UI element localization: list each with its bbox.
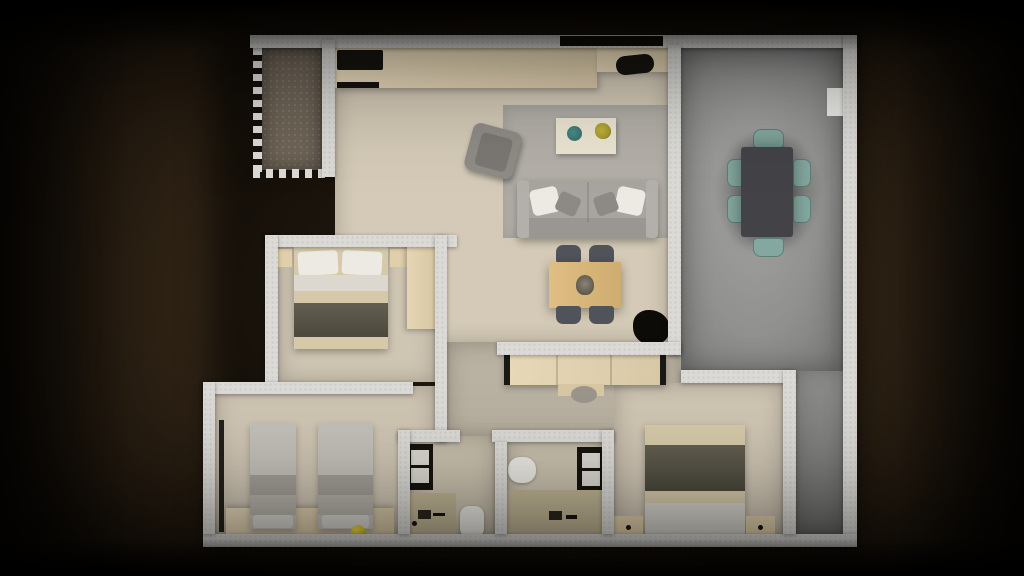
wall-hall-bath-b [492,430,614,442]
bed-sheet [294,275,388,291]
sofa-pillow-gray-right [592,191,620,217]
vanity-basin [549,511,562,520]
sofa-pillow-white-right [614,185,647,216]
bathroom2-shower [577,447,604,493]
wall-bedroom1-left [265,235,278,382]
wall-right [843,35,857,547]
bed-pillow-right [341,250,382,276]
closet-end-cap [660,354,666,385]
wall-terrace-left [668,45,681,355]
bed-blanket [294,303,388,337]
wall-bedroom1-top [265,235,457,247]
bed-blanket [645,445,745,491]
vanity-faucet [433,513,445,516]
shower-pane [582,471,600,486]
twin-bed-lower [318,495,373,515]
window-opening [560,36,663,46]
floor-plant-dark [633,310,670,345]
table-centerpiece [576,275,594,295]
twin-bed-right [318,423,373,529]
bathroom1-vanity [407,493,456,536]
bed-sheet [645,503,745,535]
terrace-dining-table [741,147,793,237]
closet-end-cap [504,354,510,385]
terrace-chair-bottom [753,238,784,257]
terrace-chair-right-2 [793,195,811,223]
wall-bathroom1-left [398,430,410,534]
wall-master-right [783,370,796,534]
closet-seam [610,354,612,385]
balcony-railing-left [253,48,262,178]
armchair-seat [474,132,514,173]
wall-bedroom1-right [435,235,447,442]
wall-bathroom-divider [495,442,507,534]
terrace-chair-right-1 [793,159,811,187]
cooktop [337,50,383,70]
master-bed [645,425,745,535]
twin-bed-band [318,475,373,495]
small-dining-chair-2 [589,245,614,263]
terrace-chair-top [753,129,784,148]
bedroom1-bed [294,247,388,349]
wall-living-bottom [497,342,681,355]
potted-plant-yellow [595,123,611,139]
bathroom2-washbasin [508,457,536,483]
shower-pane [411,468,429,483]
hallway-stool [571,386,597,403]
bathroom1-shower [407,444,433,490]
wall-terrace-bottom [681,370,795,383]
vanity-basin [418,510,431,519]
decor-plate-teal [567,126,582,141]
cooktop-edge [337,82,379,88]
twin-bed-left [250,423,296,529]
shower-pane [411,450,429,465]
twin-bedroom-floor-lamp [219,420,224,532]
small-dining-table [549,262,621,308]
balcony-railing-bottom [253,169,331,178]
room-terrace-floor-strip [795,371,843,534]
twin-bed-band [250,475,296,495]
closet-seam [556,354,558,385]
wall-bathroom2-right [602,430,614,534]
wall-top [250,35,857,48]
vanity-faucet [566,515,577,519]
floor-plan-scene: Top-down 3D rendered apartment floor pla… [0,0,1024,576]
small-dining-chair-4 [589,306,614,324]
wall-twin-left [203,382,215,534]
twin-bed-lower [250,495,296,515]
nightstand-knob [626,525,631,530]
hallway-closet [504,354,666,385]
sofa-seam [587,182,589,222]
wall-mid-horizontal [203,382,413,394]
bed-pillow-left [297,250,338,276]
vanity-drain [412,521,417,526]
sofa-armrest-right [646,180,658,238]
nightstand-knob [758,525,763,530]
wall-bottom [203,534,857,547]
sofa [517,180,658,238]
small-dining-chair-3 [556,306,581,324]
small-dining-chair-1 [556,245,581,263]
twin-bed-pillow [253,515,293,528]
room-balcony-floor [262,48,322,170]
terrace-wall-column [827,88,844,116]
sofa-armrest-left [517,180,529,238]
wall-balcony-divider [322,40,335,177]
bathroom2-vanity [507,490,602,534]
shower-pane [582,453,600,468]
